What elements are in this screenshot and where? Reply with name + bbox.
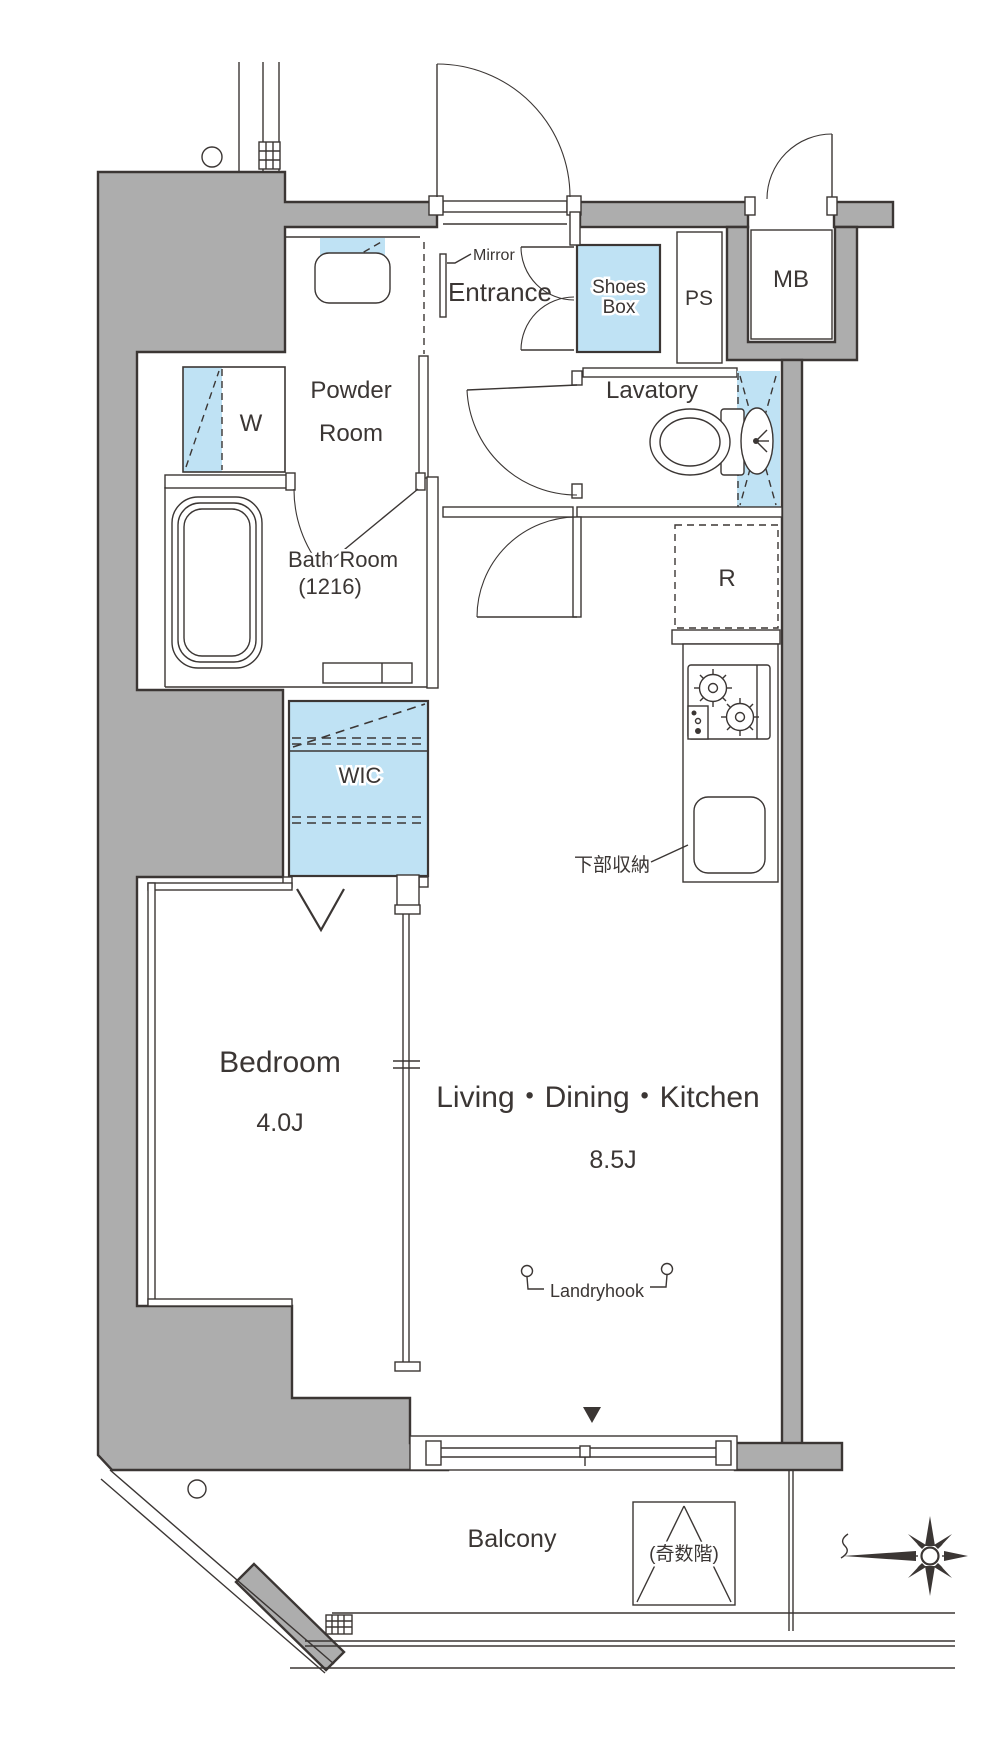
lavatory-top-wall — [583, 368, 737, 377]
door-frame — [827, 197, 837, 215]
bath-right-wall — [427, 477, 438, 688]
bedroom-walls — [148, 883, 292, 1306]
counter-bar — [672, 630, 780, 644]
mirror — [440, 254, 446, 317]
wic-label: WIC — [339, 763, 382, 788]
top-wall-strip-right — [834, 202, 893, 227]
duct-and-meter — [202, 62, 280, 172]
wash-basin — [315, 253, 390, 303]
bath-room-label-1: Bath Room — [288, 547, 398, 572]
right-wall — [782, 360, 802, 1444]
lavatory-bottom-wall — [577, 507, 782, 517]
door-frame — [429, 196, 443, 215]
powder-room-label-2: Room — [319, 420, 383, 447]
washer-space — [183, 367, 285, 472]
toilet — [650, 408, 773, 475]
bath-room-label-2: (1216) — [298, 574, 362, 599]
bath-top-wall — [165, 475, 294, 488]
window-lock — [580, 1446, 590, 1457]
balcony-label: Balcony — [468, 1525, 557, 1553]
hall-walls — [443, 507, 782, 617]
ldk-size: 8.5J — [589, 1146, 636, 1174]
lower-storage-label: 下部収納 — [574, 854, 650, 876]
floor-plan: Mirror Entrance Shoes Box PS MB Powder R… — [0, 0, 1000, 1746]
door-frame — [286, 473, 295, 490]
ceiling-symbol — [202, 147, 222, 167]
bedroom-label: Bedroom — [219, 1046, 341, 1079]
meter-grid — [259, 142, 280, 169]
north-symbol — [841, 1516, 968, 1596]
balcony — [101, 1470, 955, 1673]
shoes-box-label-1: Shoes — [592, 277, 646, 298]
entrance-label: Entrance — [448, 277, 552, 307]
refrigerator-label: R — [718, 565, 735, 592]
drain — [188, 1480, 206, 1498]
kitchen-sink — [694, 797, 765, 873]
top-wall-strip — [580, 202, 748, 227]
washer-label: W — [240, 410, 263, 437]
bedroom-size: 4.0J — [256, 1109, 303, 1137]
door-frame — [745, 197, 755, 215]
landryhook-label: Landryhook — [550, 1281, 645, 1301]
stove-controls — [688, 706, 708, 739]
balcony-wall-band — [735, 1443, 842, 1470]
entrance-door — [429, 64, 581, 224]
mirror-label: Mirror — [473, 247, 515, 264]
entrance-side-jamb — [570, 212, 580, 245]
mb-label: MB — [773, 266, 809, 293]
door-frame — [572, 371, 582, 385]
shoes-box-label-2: Box — [603, 297, 636, 318]
wic-opening-mark — [297, 889, 344, 930]
door-frame — [572, 484, 582, 498]
meter-box — [745, 134, 837, 339]
sliding-partition — [393, 875, 420, 1371]
bath-counter — [323, 663, 412, 683]
kitchen — [651, 525, 780, 882]
odd-floors-label: (奇数階) — [649, 1543, 719, 1565]
powder-room-label-1: Powder — [310, 377, 391, 404]
powder-right-wall — [419, 356, 428, 478]
bathtub — [172, 497, 262, 668]
lavatory-label: Lavatory — [606, 377, 698, 404]
ldk-label: Living・Dining・Kitchen — [436, 1081, 760, 1114]
ps-label: PS — [685, 287, 713, 310]
orientation-marker — [583, 1407, 601, 1423]
door-frame — [416, 473, 425, 490]
drain-grate — [326, 1615, 352, 1634]
ldk-window — [410, 1407, 737, 1470]
